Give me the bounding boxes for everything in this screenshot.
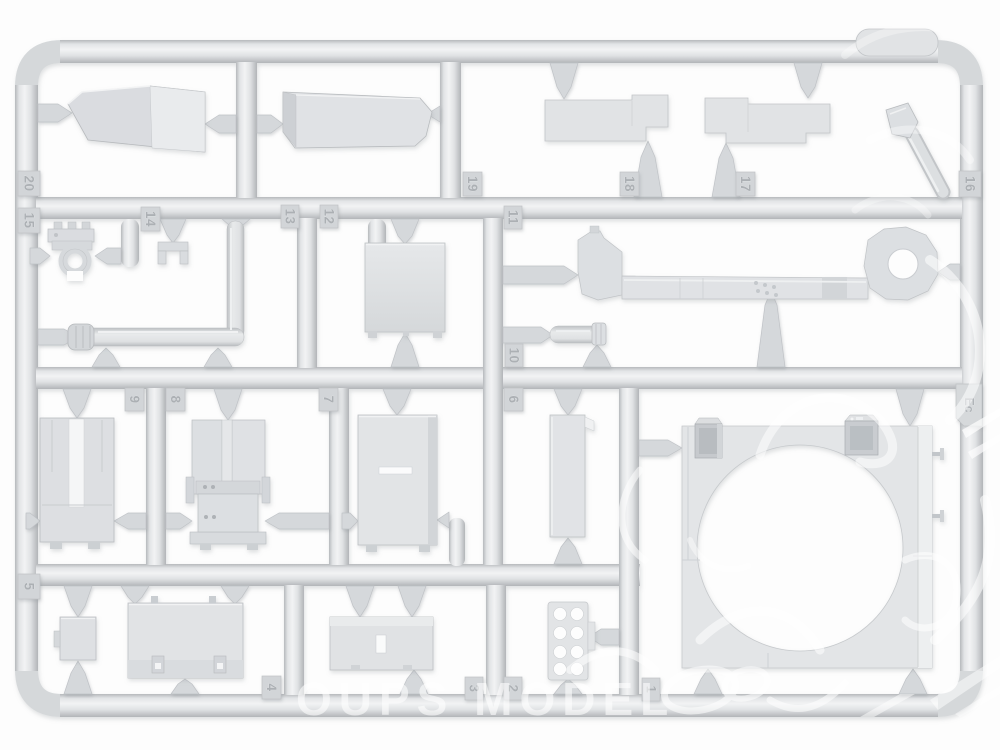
svg-text:17: 17 bbox=[738, 176, 753, 192]
part-7 bbox=[358, 415, 437, 552]
runner-v5 bbox=[146, 388, 166, 565]
gate bbox=[95, 248, 121, 264]
tag-7: 7 bbox=[319, 388, 338, 411]
tag-17: 17 bbox=[736, 172, 755, 196]
gate bbox=[794, 63, 822, 98]
tag-4: 4 bbox=[262, 676, 281, 699]
svg-text:14: 14 bbox=[143, 211, 158, 227]
part-17 bbox=[705, 98, 830, 143]
gate bbox=[92, 348, 120, 367]
svg-text:19: 19 bbox=[465, 176, 480, 192]
gate bbox=[554, 389, 582, 415]
gate bbox=[214, 389, 242, 420]
part-9 bbox=[40, 418, 114, 549]
gate bbox=[205, 115, 236, 133]
gate bbox=[398, 586, 426, 617]
part-16 bbox=[886, 103, 943, 192]
svg-text:16: 16 bbox=[963, 176, 978, 192]
part-6 bbox=[550, 415, 594, 537]
part-14 bbox=[158, 242, 188, 264]
svg-text:20: 20 bbox=[22, 175, 37, 191]
svg-text:10: 10 bbox=[507, 347, 522, 363]
tag-16: 16 bbox=[959, 171, 981, 197]
gate bbox=[503, 266, 578, 284]
part-4 bbox=[128, 596, 243, 678]
part-3 bbox=[330, 617, 433, 670]
tag-11: 11 bbox=[504, 206, 522, 229]
part-15 bbox=[48, 222, 94, 281]
tag-14: 14 bbox=[141, 207, 160, 231]
part-13 bbox=[68, 221, 244, 350]
tag-6: 6 bbox=[504, 388, 523, 411]
tag-20: 20 bbox=[18, 171, 40, 196]
gate bbox=[64, 586, 92, 617]
gate bbox=[346, 586, 374, 617]
panel-clip-left bbox=[695, 418, 722, 458]
frame-corner-bl bbox=[27, 669, 63, 706]
gate bbox=[383, 389, 411, 415]
part-10 bbox=[550, 323, 606, 345]
svg-text:7: 7 bbox=[321, 395, 336, 403]
runner-v4 bbox=[483, 218, 503, 565]
gate bbox=[63, 389, 91, 418]
gate bbox=[437, 512, 449, 528]
tag-9: 9 bbox=[125, 388, 144, 411]
part-8 bbox=[186, 420, 270, 550]
part-12 bbox=[365, 243, 445, 338]
runner-v3 bbox=[297, 218, 317, 368]
svg-text:18: 18 bbox=[622, 176, 637, 192]
gate bbox=[64, 661, 92, 694]
part-5 bbox=[54, 617, 96, 660]
part-1-turret-ring-panel bbox=[682, 415, 944, 668]
watermark-text: OUPS MODEL bbox=[296, 673, 675, 725]
part-11 bbox=[578, 226, 938, 300]
runner-h3 bbox=[36, 564, 640, 586]
gate bbox=[121, 586, 149, 604]
gate bbox=[391, 333, 419, 367]
gate bbox=[114, 513, 146, 529]
gate bbox=[503, 327, 553, 343]
tag-18: 18 bbox=[620, 172, 639, 196]
gate bbox=[899, 669, 927, 694]
gate bbox=[221, 586, 249, 604]
svg-text:15: 15 bbox=[22, 212, 37, 228]
svg-text:4: 4 bbox=[264, 683, 279, 691]
part-19 bbox=[283, 92, 432, 148]
svg-text:6: 6 bbox=[506, 395, 521, 403]
gate bbox=[160, 219, 186, 243]
gate bbox=[30, 248, 50, 264]
runner-v2 bbox=[440, 62, 461, 198]
runner-stub-a bbox=[121, 219, 139, 267]
runner-h1 bbox=[36, 197, 962, 219]
frame-corner-tl bbox=[27, 52, 63, 88]
tag-19: 19 bbox=[463, 172, 482, 196]
gate bbox=[550, 63, 578, 99]
svg-text:8: 8 bbox=[168, 395, 183, 403]
frame-corner-tr bbox=[936, 52, 972, 88]
frame-rail-top bbox=[60, 40, 938, 63]
tag-5: 5 bbox=[18, 574, 40, 599]
gate bbox=[38, 104, 72, 122]
gate bbox=[757, 291, 785, 367]
gate bbox=[171, 679, 199, 694]
gate bbox=[554, 538, 582, 564]
part-18 bbox=[545, 95, 668, 141]
gate bbox=[342, 513, 358, 529]
svg-text:9: 9 bbox=[127, 395, 142, 403]
tag-12: 12 bbox=[320, 205, 338, 228]
panel-pins bbox=[932, 448, 944, 522]
tag-13: 13 bbox=[281, 205, 299, 228]
runner-stub-c bbox=[449, 518, 465, 566]
gate bbox=[166, 513, 192, 529]
runner-v6 bbox=[329, 388, 349, 565]
svg-text:12: 12 bbox=[322, 208, 337, 224]
gate bbox=[265, 513, 329, 529]
svg-text:13: 13 bbox=[283, 208, 298, 224]
gate bbox=[204, 348, 232, 367]
svg-text:5: 5 bbox=[22, 582, 37, 590]
gate bbox=[257, 115, 283, 133]
tag-8: 8 bbox=[166, 388, 185, 411]
tag-15: 15 bbox=[18, 208, 40, 233]
gate bbox=[583, 345, 611, 367]
panel-clip-right bbox=[845, 415, 878, 455]
sprue-photo: 20 19 18 17 16 15 14 13 bbox=[0, 0, 1000, 750]
gate bbox=[639, 440, 682, 456]
svg-text:11: 11 bbox=[506, 210, 521, 225]
part-20 bbox=[68, 86, 205, 152]
gate bbox=[896, 389, 924, 426]
gate bbox=[391, 219, 419, 244]
runner-v1 bbox=[236, 62, 257, 198]
tag-10: 10 bbox=[505, 344, 523, 367]
